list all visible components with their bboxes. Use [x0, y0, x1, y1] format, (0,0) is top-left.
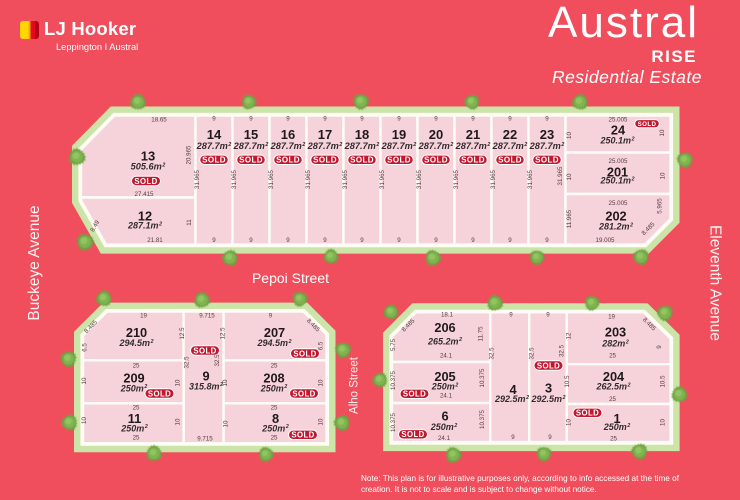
svg-text:25: 25: [271, 404, 278, 411]
svg-text:18: 18: [355, 127, 369, 142]
svg-text:10: 10: [318, 379, 325, 386]
svg-text:Pepoi Street: Pepoi Street: [252, 270, 329, 286]
svg-text:9: 9: [397, 116, 401, 123]
svg-text:31.965: 31.965: [453, 169, 460, 188]
svg-text:9: 9: [548, 434, 552, 441]
svg-text:262.5m2: 262.5m2: [595, 382, 630, 392]
svg-text:10: 10: [175, 418, 182, 425]
svg-text:10: 10: [81, 417, 88, 424]
svg-text:9: 9: [471, 116, 475, 123]
svg-text:9: 9: [323, 237, 327, 244]
svg-text:10: 10: [660, 419, 667, 426]
svg-text:SOLD: SOLD: [239, 156, 263, 165]
svg-text:SOLD: SOLD: [276, 156, 300, 165]
svg-text:25.005: 25.005: [609, 200, 628, 207]
svg-text:10: 10: [175, 379, 182, 386]
svg-text:23: 23: [540, 127, 554, 142]
svg-text:19.005: 19.005: [596, 237, 615, 244]
svg-text:9: 9: [212, 237, 216, 244]
svg-text:250m2: 250m2: [431, 382, 459, 392]
svg-text:18.65: 18.65: [151, 117, 167, 124]
svg-text:287.7m2: 287.7m2: [196, 141, 232, 151]
svg-text:287.7m2: 287.7m2: [418, 141, 454, 151]
svg-text:21: 21: [466, 127, 480, 142]
svg-text:25: 25: [609, 352, 616, 359]
svg-text:287.1m2: 287.1m2: [127, 221, 162, 231]
svg-text:25: 25: [609, 396, 616, 403]
svg-text:287.7m2: 287.7m2: [307, 141, 343, 151]
svg-text:14: 14: [207, 127, 222, 142]
svg-text:10.375: 10.375: [390, 370, 397, 389]
svg-text:SOLD: SOLD: [535, 156, 559, 165]
svg-text:287.7m2: 287.7m2: [455, 141, 491, 151]
svg-text:32.5: 32.5: [489, 347, 496, 360]
svg-text:31.965: 31.965: [379, 169, 386, 188]
svg-text:250.1m2: 250.1m2: [599, 176, 634, 186]
svg-text:18.1: 18.1: [441, 312, 454, 319]
svg-text:250m2: 250m2: [120, 383, 148, 393]
svg-text:25: 25: [271, 435, 278, 442]
svg-text:19: 19: [140, 313, 147, 320]
svg-text:9: 9: [545, 237, 549, 244]
svg-text:203: 203: [605, 324, 626, 339]
svg-text:15: 15: [244, 127, 258, 142]
svg-text:24.1: 24.1: [440, 392, 453, 399]
svg-text:250m2: 250m2: [261, 423, 289, 433]
svg-text:10: 10: [223, 420, 230, 427]
svg-text:20: 20: [429, 127, 443, 142]
svg-text:16: 16: [281, 127, 295, 142]
svg-text:Eleventh Avenue: Eleventh Avenue: [707, 225, 724, 341]
svg-text:25: 25: [271, 363, 278, 370]
svg-text:21.81: 21.81: [147, 237, 163, 244]
svg-text:10: 10: [566, 132, 573, 139]
svg-text:250m2: 250m2: [430, 422, 458, 432]
svg-text:10: 10: [659, 129, 666, 136]
svg-text:9: 9: [511, 434, 515, 441]
svg-text:9: 9: [434, 237, 438, 244]
svg-text:32.5: 32.5: [529, 347, 536, 360]
svg-text:11.965: 11.965: [566, 209, 573, 228]
svg-text:10.5: 10.5: [660, 375, 667, 388]
svg-text:24.1: 24.1: [440, 352, 453, 359]
svg-text:9: 9: [249, 237, 253, 244]
svg-text:11: 11: [186, 219, 193, 226]
svg-text:265.2m2: 265.2m2: [427, 336, 462, 346]
svg-text:10.5: 10.5: [564, 375, 571, 388]
svg-text:9: 9: [212, 116, 216, 123]
svg-text:9: 9: [360, 116, 364, 123]
svg-text:10.375: 10.375: [479, 409, 486, 428]
svg-text:32.5: 32.5: [184, 356, 191, 369]
svg-text:282m2: 282m2: [601, 338, 629, 348]
svg-text:10: 10: [566, 419, 573, 426]
svg-text:9: 9: [656, 345, 663, 349]
svg-text:10: 10: [222, 379, 229, 386]
svg-text:9: 9: [509, 312, 513, 319]
svg-text:12: 12: [566, 332, 573, 339]
svg-text:31.965: 31.965: [231, 169, 238, 188]
svg-text:5.75: 5.75: [390, 338, 397, 351]
svg-text:31.965: 31.965: [416, 169, 423, 188]
svg-text:31.965: 31.965: [268, 169, 275, 188]
svg-text:10: 10: [566, 173, 573, 180]
svg-text:281.2m2: 281.2m2: [598, 222, 633, 232]
svg-text:17: 17: [318, 127, 332, 142]
svg-text:6.5: 6.5: [82, 343, 89, 352]
svg-text:SOLD: SOLD: [350, 156, 374, 165]
svg-text:19: 19: [392, 127, 406, 142]
svg-text:9.715: 9.715: [197, 435, 213, 442]
svg-text:12.5: 12.5: [220, 327, 227, 340]
svg-text:10: 10: [660, 172, 667, 179]
svg-text:SOLD: SOLD: [291, 431, 314, 440]
svg-text:SOLD: SOLD: [498, 156, 522, 165]
svg-text:Buckeye Avenue: Buckeye Avenue: [26, 205, 43, 320]
svg-text:SOLD: SOLD: [424, 156, 448, 165]
svg-text:10: 10: [81, 377, 88, 384]
svg-text:25: 25: [133, 363, 140, 370]
svg-text:25: 25: [610, 436, 617, 443]
svg-text:250.1m2: 250.1m2: [599, 136, 634, 146]
svg-text:9: 9: [508, 116, 512, 123]
svg-text:292.5m2: 292.5m2: [530, 394, 565, 404]
svg-text:SOLD: SOLD: [537, 361, 560, 370]
svg-text:9.715: 9.715: [199, 313, 215, 320]
svg-text:287.7m2: 287.7m2: [270, 141, 306, 151]
svg-text:287.7m2: 287.7m2: [233, 141, 269, 151]
svg-text:315.8m2: 315.8m2: [189, 381, 223, 391]
svg-text:32.5: 32.5: [214, 354, 221, 367]
svg-text:22: 22: [503, 127, 517, 142]
svg-text:20.965: 20.965: [186, 145, 193, 164]
svg-text:SOLD: SOLD: [313, 156, 337, 165]
svg-text:SOLD: SOLD: [292, 389, 315, 398]
svg-text:19: 19: [608, 313, 615, 320]
svg-text:287.7m2: 287.7m2: [529, 141, 565, 151]
svg-text:SOLD: SOLD: [461, 156, 485, 165]
svg-text:9: 9: [434, 116, 438, 123]
svg-text:5.965: 5.965: [657, 198, 664, 214]
svg-text:250m2: 250m2: [120, 423, 148, 433]
svg-text:250m2: 250m2: [603, 422, 631, 432]
svg-text:31.965: 31.965: [557, 166, 564, 185]
svg-text:25: 25: [133, 435, 140, 442]
svg-text:SOLD: SOLD: [387, 156, 411, 165]
svg-text:9: 9: [397, 237, 401, 244]
svg-text:31.965: 31.965: [342, 169, 349, 188]
svg-text:287.7m2: 287.7m2: [344, 141, 380, 151]
svg-text:206: 206: [434, 320, 455, 335]
svg-text:9: 9: [471, 237, 475, 244]
svg-text:287.7m2: 287.7m2: [381, 141, 417, 151]
svg-text:9: 9: [269, 313, 273, 320]
svg-text:31.965: 31.965: [527, 169, 534, 188]
svg-text:SOLD: SOLD: [148, 389, 171, 398]
svg-text:31.965: 31.965: [490, 169, 497, 188]
svg-text:27.415: 27.415: [135, 191, 154, 198]
svg-text:9: 9: [249, 116, 253, 123]
svg-text:9: 9: [546, 312, 550, 319]
svg-text:SOLD: SOLD: [202, 156, 226, 165]
svg-text:9: 9: [508, 237, 512, 244]
svg-text:11.75: 11.75: [478, 326, 485, 342]
svg-text:12.5: 12.5: [179, 327, 186, 340]
svg-text:9: 9: [360, 237, 364, 244]
svg-text:9: 9: [323, 116, 327, 123]
svg-text:31.965: 31.965: [194, 169, 201, 188]
svg-text:505.6m2: 505.6m2: [131, 162, 166, 172]
svg-text:292.5m2: 292.5m2: [494, 394, 529, 404]
svg-text:SOLD: SOLD: [576, 409, 599, 418]
svg-text:Alho Street: Alho Street: [349, 356, 361, 414]
svg-text:SOLD: SOLD: [193, 346, 216, 355]
svg-text:287.7m2: 287.7m2: [492, 141, 528, 151]
svg-text:SOLD: SOLD: [638, 121, 657, 128]
svg-text:9: 9: [286, 237, 290, 244]
svg-text:6.5: 6.5: [318, 341, 325, 350]
svg-text:10.375: 10.375: [479, 368, 486, 387]
svg-text:250m2: 250m2: [260, 383, 288, 393]
svg-text:SOLD: SOLD: [401, 430, 424, 439]
svg-text:24.1: 24.1: [438, 435, 451, 442]
svg-text:SOLD: SOLD: [134, 177, 157, 186]
svg-text:31.965: 31.965: [305, 169, 312, 188]
svg-text:25: 25: [133, 404, 140, 411]
svg-text:SOLD: SOLD: [403, 390, 426, 399]
svg-text:32.5: 32.5: [559, 344, 566, 357]
svg-text:294.5m2: 294.5m2: [256, 338, 291, 348]
svg-text:294.5m2: 294.5m2: [118, 338, 153, 348]
svg-text:9: 9: [286, 116, 290, 123]
svg-text:9: 9: [545, 116, 549, 123]
svg-text:10: 10: [318, 418, 325, 425]
svg-text:10.375: 10.375: [390, 412, 397, 431]
svg-text:SOLD: SOLD: [293, 349, 316, 358]
